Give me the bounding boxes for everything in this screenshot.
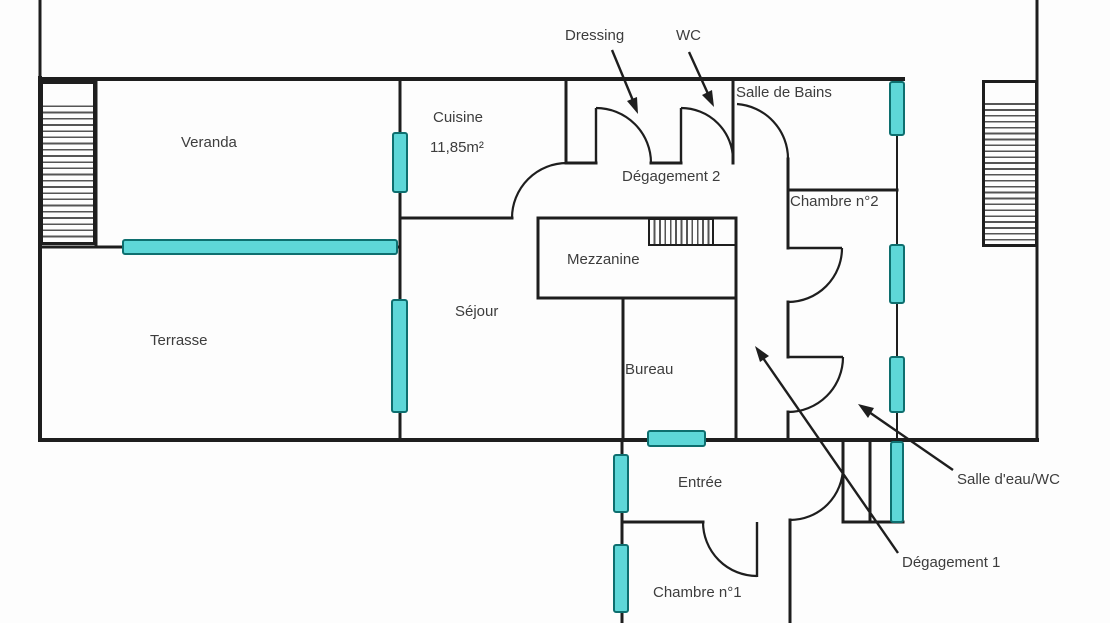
chambre2-window-upper bbox=[890, 245, 904, 303]
porch-window bbox=[891, 442, 903, 522]
chambre2-window-lower bbox=[890, 357, 904, 412]
label-salle-de-bains: Salle de Bains bbox=[736, 84, 832, 101]
label-degagement1: Dégagement 1 bbox=[902, 554, 1000, 571]
label-cuisine: Cuisine bbox=[433, 109, 483, 126]
wc-door-arc bbox=[681, 108, 733, 160]
entree-window bbox=[648, 431, 705, 446]
label-veranda: Veranda bbox=[181, 134, 238, 151]
degagement1-arrow bbox=[763, 358, 898, 553]
chambre1-window bbox=[614, 545, 628, 612]
wc-arrow bbox=[689, 52, 709, 96]
label-chambre1: Chambre n°1 bbox=[653, 584, 742, 601]
label-chambre2: Chambre n°2 bbox=[790, 193, 879, 210]
dressing-door-arc bbox=[596, 108, 651, 163]
dressing-arrowhead bbox=[627, 97, 638, 114]
entree-door-arc bbox=[790, 467, 843, 520]
degagement1-arrowhead bbox=[755, 346, 769, 362]
floor-plan-drawing: Dressing WC Salle de Bains Cuisine 11,85… bbox=[0, 0, 1110, 623]
label-bureau: Bureau bbox=[625, 361, 673, 378]
salle-de-bains-door-arc bbox=[737, 104, 788, 159]
salle-eau-arrowhead bbox=[858, 404, 874, 418]
label-terrasse: Terrasse bbox=[150, 332, 208, 349]
cuisine-window bbox=[393, 133, 407, 192]
veranda-window bbox=[123, 240, 397, 254]
label-degagement2: Dégagement 2 bbox=[622, 168, 720, 185]
salle-de-bains-window bbox=[890, 82, 904, 135]
chambre2-door-arc bbox=[788, 248, 842, 302]
label-dressing: Dressing bbox=[565, 27, 624, 44]
salle-eau-door-arc bbox=[788, 357, 843, 412]
label-salle-eau-wc: Salle d'eau/WC bbox=[957, 471, 1060, 488]
entree-side-window bbox=[614, 455, 628, 512]
label-mezzanine: Mezzanine bbox=[567, 251, 640, 268]
wc-arrowhead bbox=[702, 90, 714, 107]
dressing-arrow bbox=[612, 50, 634, 103]
label-wc: WC bbox=[676, 27, 701, 44]
label-entree: Entrée bbox=[678, 474, 722, 491]
cuisine-door-arc bbox=[512, 163, 567, 218]
label-sejour: Séjour bbox=[455, 303, 498, 320]
floor-plan: Dressing WC Salle de Bains Cuisine 11,85… bbox=[0, 0, 1110, 623]
sejour-window bbox=[392, 300, 407, 412]
chambre1-door-arc bbox=[703, 522, 757, 576]
label-cuisine-area: 11,85m² bbox=[430, 139, 484, 156]
